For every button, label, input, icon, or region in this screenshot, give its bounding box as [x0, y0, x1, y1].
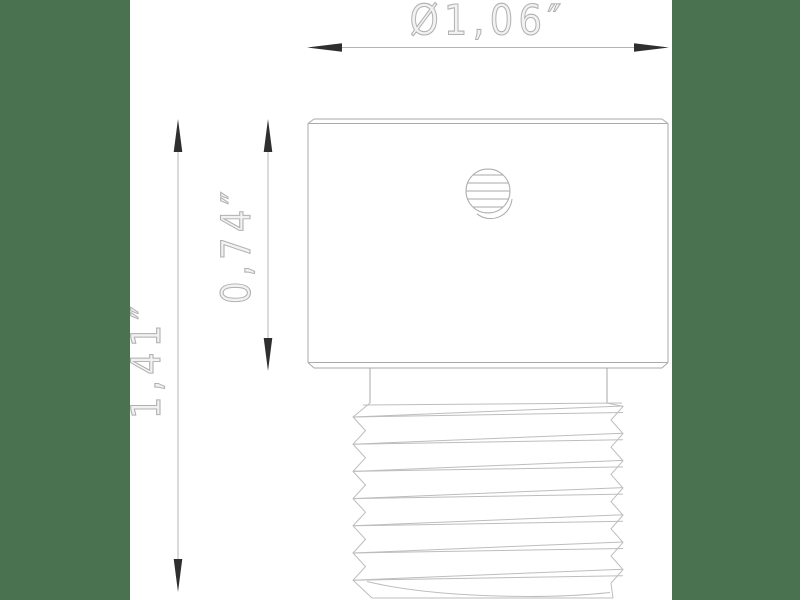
- thread-runout-arc: [367, 582, 610, 597]
- arrow-left-icon: [307, 43, 342, 52]
- thread-right-edge: [607, 403, 623, 598]
- arrow-down-icon: [264, 338, 273, 371]
- thread-section: [353, 403, 623, 598]
- part-body-outline: [308, 119, 668, 403]
- arrow-up-icon: [174, 119, 183, 152]
- arrow-right-icon: [634, 43, 669, 52]
- screenshot-stage: Ø1,06″ 1,41″ 0,74″: [0, 0, 800, 600]
- part-drawing: [0, 0, 800, 600]
- arrow-down-icon: [174, 559, 183, 592]
- arrow-up-icon: [264, 119, 273, 152]
- thread-left-edge: [353, 403, 372, 598]
- side-hole: [466, 169, 512, 219]
- dimension-lines-and-arrows: [174, 43, 669, 592]
